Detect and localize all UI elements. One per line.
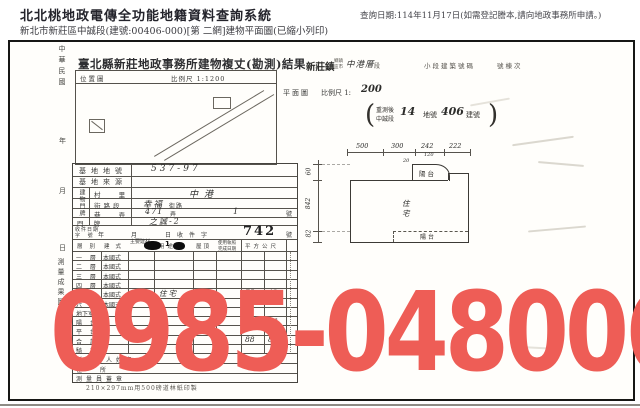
watermark-phone-number: 0985-048006	[50, 277, 640, 387]
scan-edge-line	[0, 404, 640, 406]
system-title: 北北桃地政電傳全功能地籍資料查詢系統	[20, 5, 272, 24]
plan-wall-right	[468, 173, 469, 242]
receipt-month: 月	[131, 230, 137, 239]
township-value: 新莊鎮	[306, 59, 335, 73]
receipt-prefix: 日收件字	[165, 230, 213, 239]
header-style: 建式	[104, 242, 127, 250]
floor-plan-label: 平面圖	[283, 88, 310, 98]
redaction-digit: 1	[165, 240, 170, 248]
header-roof: 屋頂	[196, 242, 211, 250]
lane-value-1: 471	[145, 207, 163, 216]
paren-open: (	[365, 100, 375, 130]
dim-left-2: 842	[305, 198, 312, 209]
redaction-blob-2	[173, 242, 185, 250]
plan-wall-bottom	[350, 242, 469, 243]
lane-value-2: 1	[233, 207, 238, 216]
document-subtitle: 新北市新莊區中誠段(建號:00406-000)[第 二網]建物平面圖(已縮小列印…	[20, 23, 328, 37]
dim-top-1: 500	[356, 142, 368, 150]
building-unit-label: 建號	[466, 110, 480, 120]
plan-wall-left	[350, 180, 351, 242]
plan-wall-top-right	[448, 173, 468, 174]
plan-wall-top-left	[350, 180, 412, 181]
residence-label-2: 宅	[402, 208, 410, 219]
village-value: 中港	[189, 187, 219, 200]
site-number-value: 537-97	[151, 164, 201, 174]
section-unit: 段	[374, 61, 380, 70]
village-label: 村 里	[94, 189, 133, 199]
day-label: 日	[59, 243, 66, 253]
dim-bump-top: 120	[424, 152, 434, 158]
site-marker-box	[89, 119, 105, 133]
resurvey-section-number: 14	[400, 105, 415, 118]
header-area: 平方公尺	[245, 242, 279, 250]
header-license-2: 完成日期	[218, 246, 236, 252]
dim-top-4: 222	[449, 142, 461, 150]
month-label: 月	[59, 186, 66, 196]
location-box-label: 位置圖	[80, 73, 106, 83]
road-line-1	[154, 90, 264, 157]
plate-value: 之誠-2	[149, 215, 181, 227]
resurvey-label-bottom: 中誠段	[376, 114, 394, 123]
site-number-label: 基地地號	[79, 166, 127, 176]
parcel-number: 406	[441, 105, 464, 118]
plan-scale-label: 比例尺 1:	[321, 88, 351, 98]
receipt-year: 年	[98, 230, 104, 239]
resurvey-label-top: 重測後	[376, 105, 394, 114]
redaction-blob-1	[144, 241, 161, 250]
balcony-bottom-label: 陽台	[420, 232, 436, 241]
dim-top-2: 300	[391, 142, 403, 150]
header-floor: 層別	[77, 242, 102, 250]
dim-line-top	[347, 152, 470, 153]
lane-unit-2: 號	[286, 209, 292, 218]
landmark-box	[213, 97, 231, 109]
dim-left-1: 60	[305, 168, 312, 176]
subsection-label: 小段建築號碼	[424, 60, 475, 70]
dim-top-3: 242	[421, 142, 433, 150]
receipt-number-label: 字 號	[75, 232, 96, 239]
site-source-label: 基地來源	[79, 177, 127, 187]
receipt-unit: 號	[286, 230, 292, 239]
dim-left-3: 82	[305, 230, 312, 238]
year-label: 年	[59, 136, 66, 146]
query-date: 查詢日期:114年11月17日(如需登記謄本,請向地政事務所申請。)	[360, 9, 601, 21]
section-value: 中港厝	[346, 58, 375, 70]
parcel-unit-label: 地號	[423, 110, 437, 120]
location-map-box: 位置圖 比例尺 1:1200	[75, 70, 277, 165]
floor-row-name: 一 層	[76, 253, 99, 262]
floor-row-style: 本國式	[103, 253, 121, 262]
query-result-page: 北北桃地政電傳全功能地籍資料查詢系統 新北市新莊區中誠段(建號:00406-00…	[0, 0, 640, 408]
dim-bump-left: 20	[403, 158, 409, 164]
era-label: 中華民國	[57, 45, 67, 115]
township-unit-bottom: 區市	[334, 64, 343, 70]
paren-close: )	[488, 100, 498, 130]
location-box-scale: 比例尺 1:1200	[171, 73, 225, 83]
receipt-number-value: 742	[243, 224, 276, 239]
plan-scale-value: 200	[361, 84, 382, 95]
dim-line-left	[318, 160, 319, 242]
balcony-top-label: 陽台	[419, 168, 436, 178]
building-number-label: 號棟次	[497, 60, 523, 70]
